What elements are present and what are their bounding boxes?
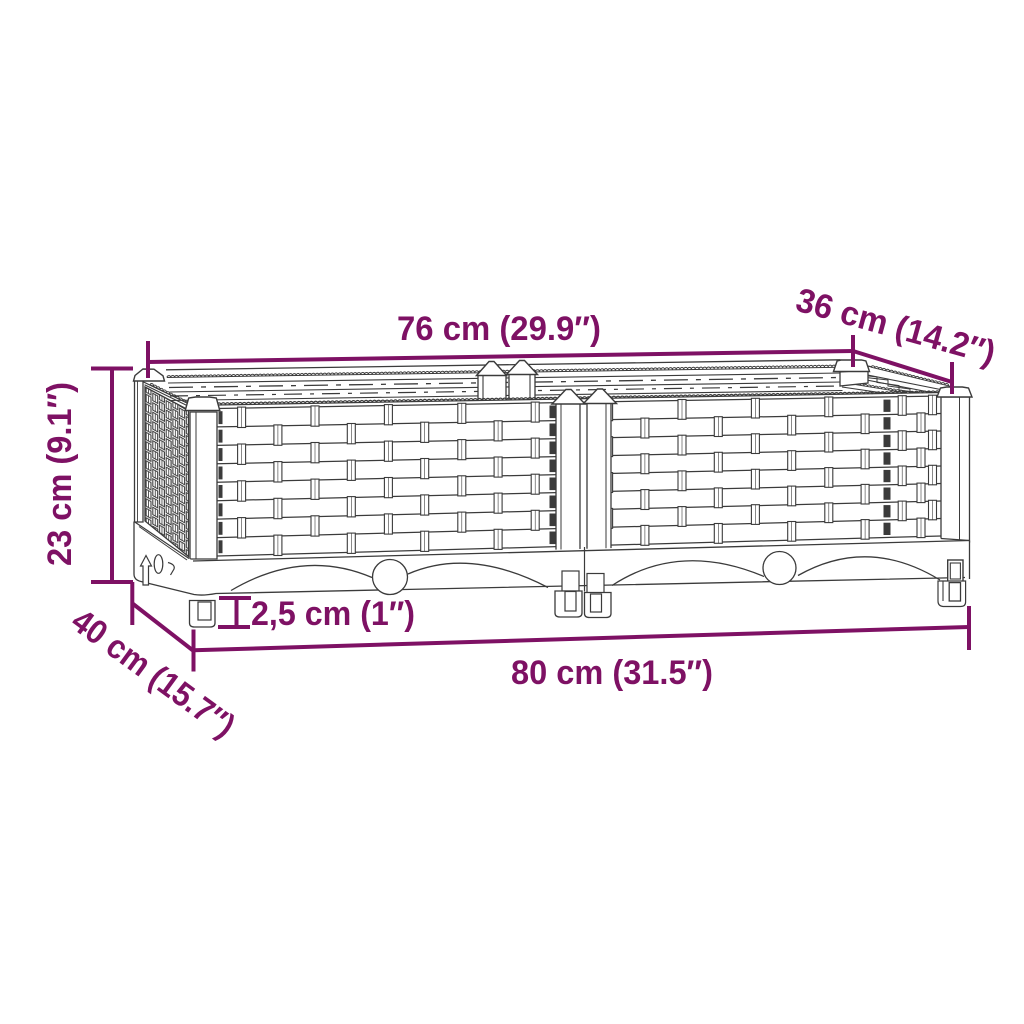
- svg-text:23 cm (9.1″): 23 cm (9.1″): [41, 382, 79, 566]
- svg-text:2,5 cm (1″): 2,5 cm (1″): [251, 595, 415, 633]
- svg-text:76 cm (29.9″): 76 cm (29.9″): [397, 310, 601, 348]
- svg-text:80 cm (31.5″): 80 cm (31.5″): [511, 654, 713, 692]
- svg-text:36 cm (14.2″): 36 cm (14.2″): [792, 281, 1000, 372]
